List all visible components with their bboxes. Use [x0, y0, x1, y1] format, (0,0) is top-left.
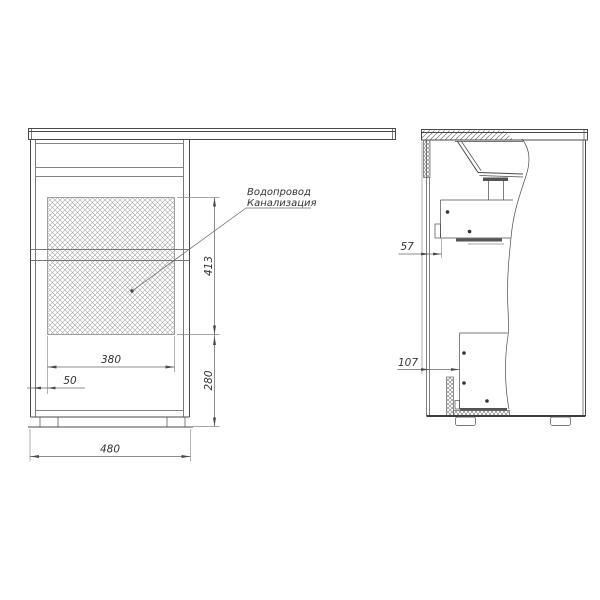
dim-107: 107: [398, 357, 460, 371]
annotation-line1: Водопровод: [247, 187, 311, 198]
front-countertop: [29, 129, 396, 140]
dim-380-label: 380: [101, 354, 121, 366]
side-front-panel: [583, 140, 586, 416]
side-sink-bowl: [455, 142, 523, 182]
dim-57: 57: [399, 239, 442, 258]
front-feet: [28, 417, 193, 427]
side-back-panel: [424, 140, 431, 416]
dim-107-label: 107: [398, 357, 418, 369]
dim-480: 480: [30, 429, 191, 462]
side-countertop: [422, 130, 588, 141]
front-service-hatch: [48, 198, 175, 335]
dim-413-label: 413: [203, 256, 215, 276]
front-drawer: [36, 144, 184, 168]
dim-50-label: 50: [63, 375, 77, 387]
front-view: Водопровод Канализация 413 280 380: [27, 129, 396, 462]
side-feet: [427, 416, 586, 426]
drawing-canvas: Водопровод Канализация 413 280 380: [0, 0, 600, 600]
technical-drawing: Водопровод Канализация 413 280 380: [0, 0, 600, 600]
side-view: 57 107: [398, 130, 588, 426]
dim-480-label: 480: [100, 444, 120, 456]
section-break-curve: [505, 139, 529, 409]
dim-57-label: 57: [401, 241, 415, 253]
dim-280-label: 280: [203, 370, 215, 390]
side-upper-box: [435, 200, 513, 244]
annotation-line2: Канализация: [247, 198, 317, 209]
side-lower-box: [455, 333, 508, 411]
side-drain-pipe: [489, 181, 504, 200]
side-bracket-hatch: [447, 377, 510, 417]
